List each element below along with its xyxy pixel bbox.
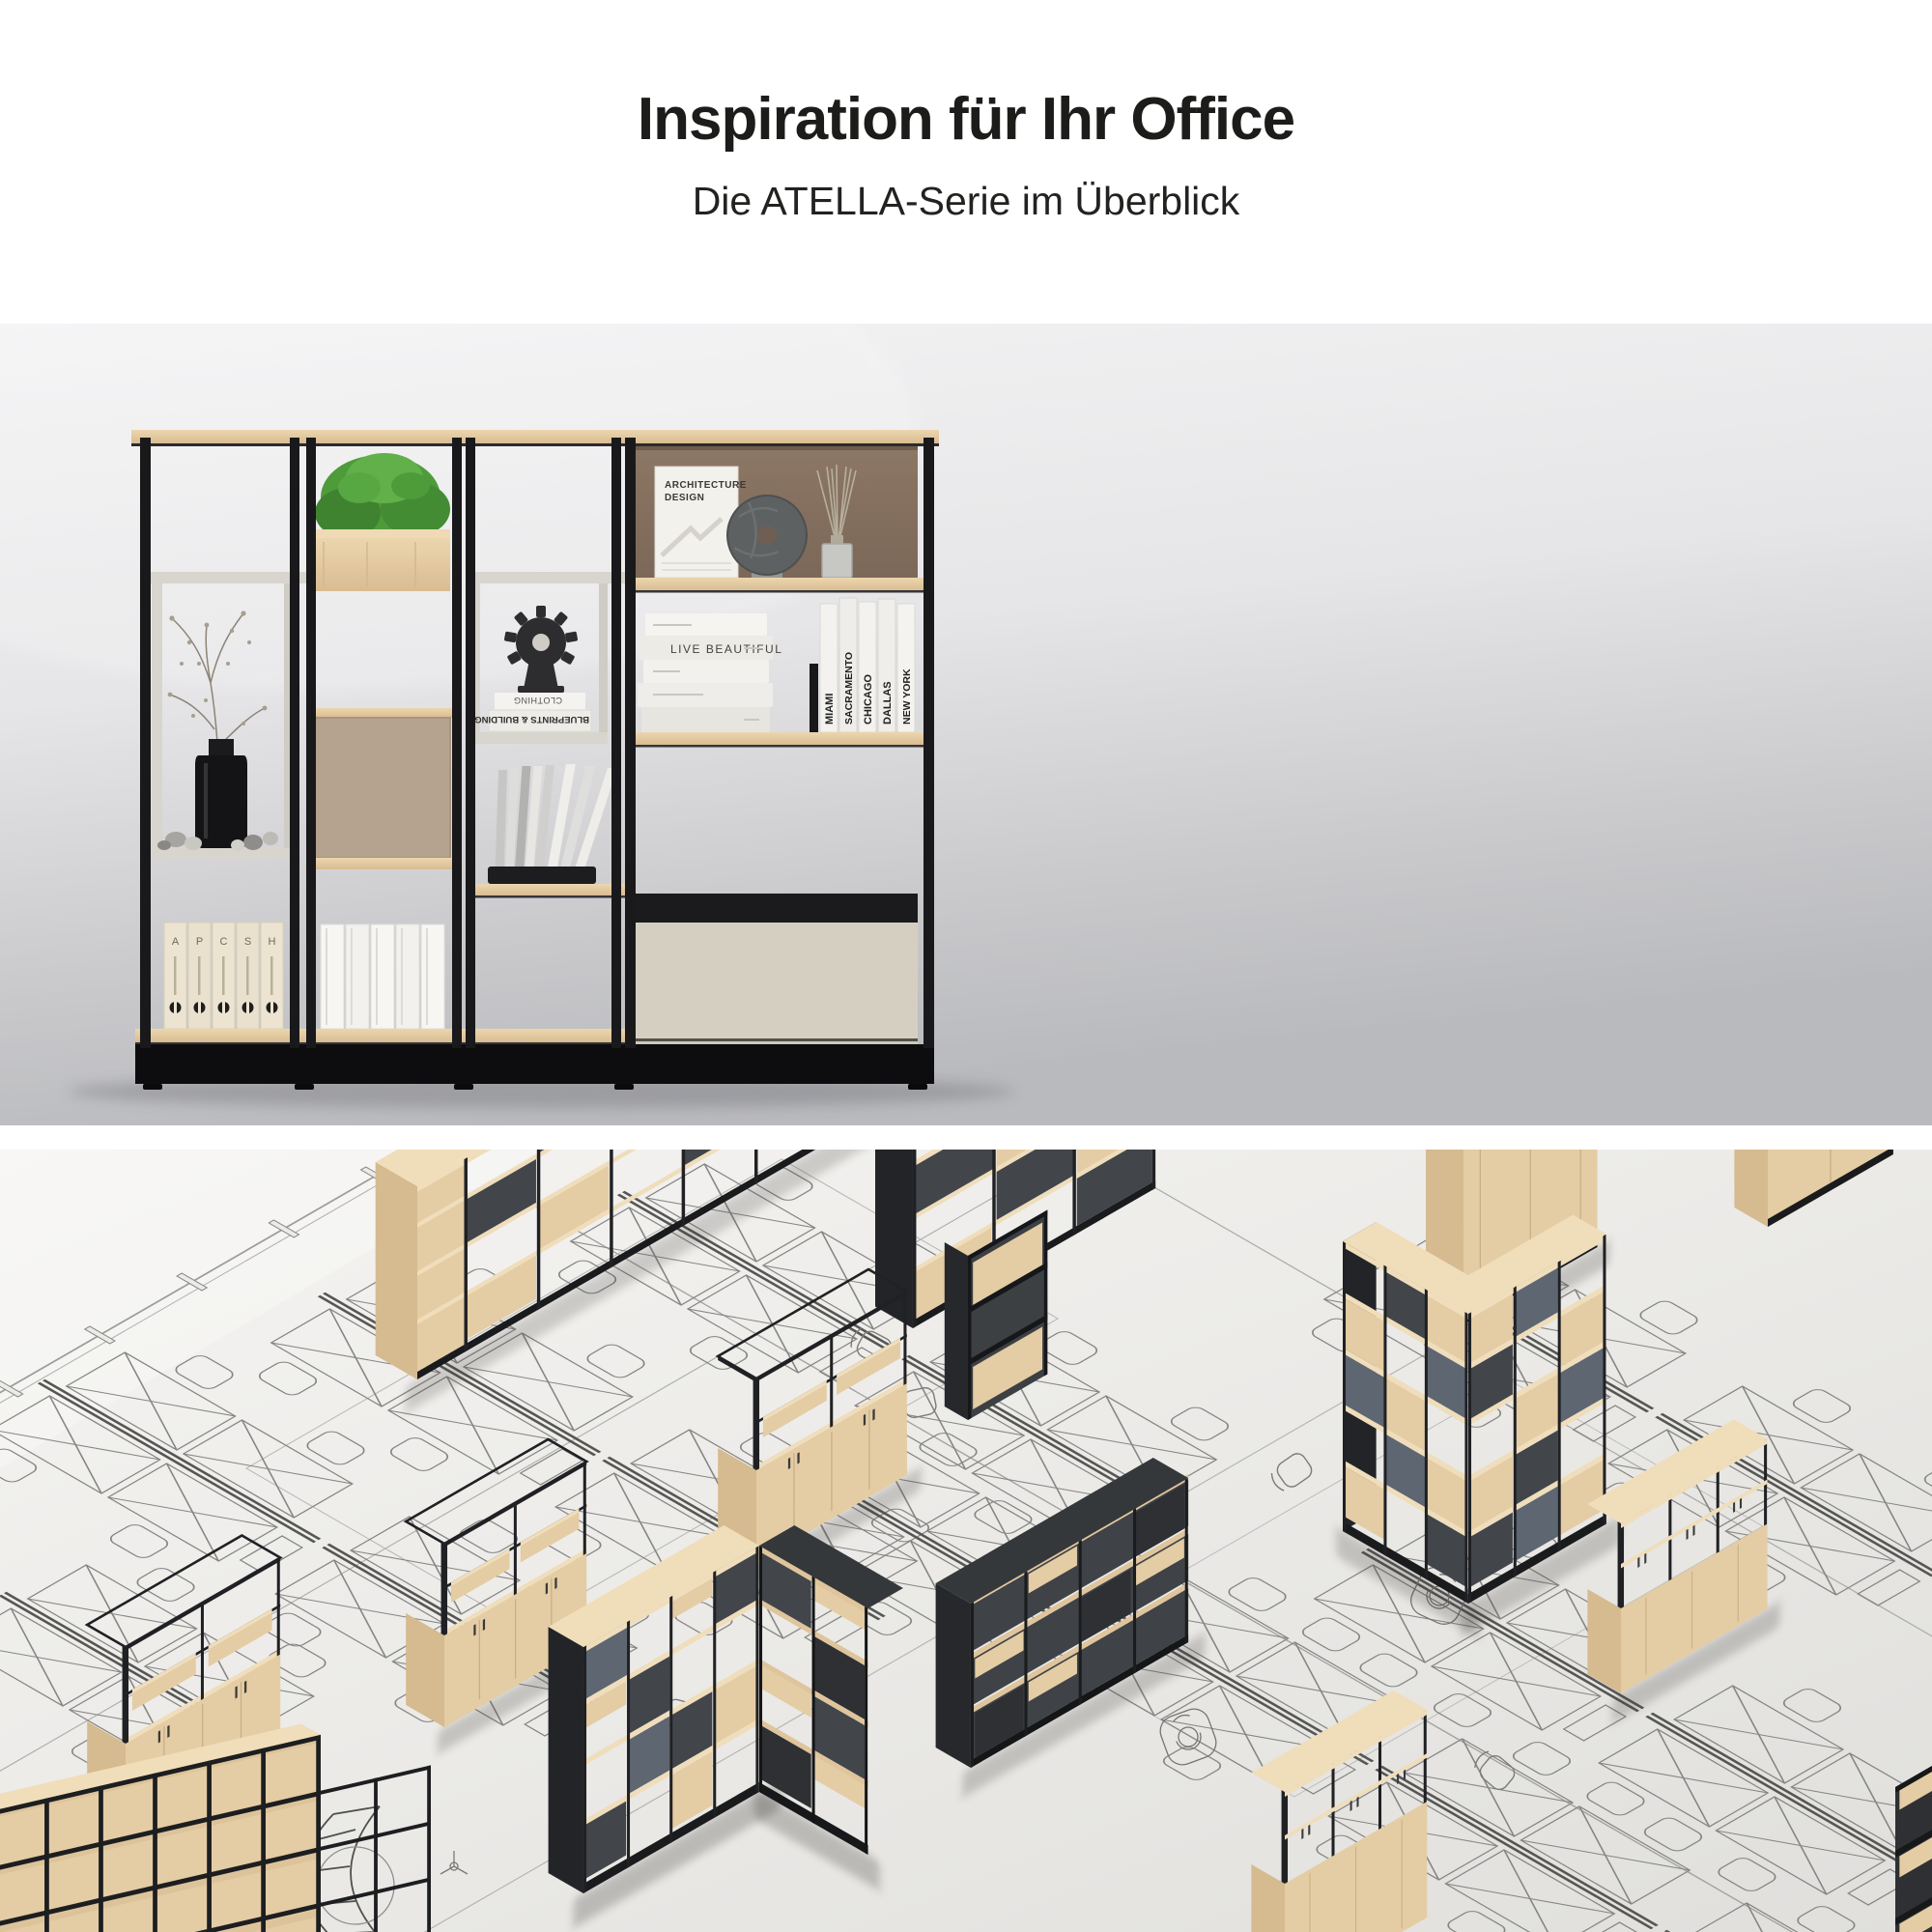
- svg-text:MIAMI: MIAMI: [824, 694, 836, 724]
- page-title: Inspiration für Ihr Office: [0, 85, 1932, 154]
- binders-labeled: A P C S H: [164, 923, 283, 1029]
- felt-panel-tan: [306, 708, 454, 869]
- floorplan-illustration: [0, 1150, 1932, 1932]
- shelf-light-c1: [140, 572, 306, 583]
- svg-text:S: S: [244, 936, 251, 948]
- svg-text:DALLAS: DALLAS: [882, 681, 894, 724]
- section-divider: [0, 1125, 1932, 1150]
- shelf-photo-illustration: ARCHITECTURE DESIGN: [0, 324, 1932, 1125]
- floorplan-render: [0, 1150, 1932, 1932]
- page-subtitle: Die ATELLA-Serie im Überblick: [0, 179, 1932, 224]
- bottom-shelf: [135, 1029, 628, 1042]
- planter-plant: [311, 453, 450, 591]
- svg-text:CLOTHING: CLOTHING: [513, 696, 562, 705]
- plinth: [135, 1044, 934, 1084]
- svg-text:A: A: [172, 936, 180, 948]
- svg-text:C: C: [220, 936, 228, 948]
- header: Inspiration für Ihr Office Die ATELLA-Se…: [0, 0, 1932, 324]
- svg-text:BLUEPRINTS & BUILDINGS: BLUEPRINTS & BUILDINGS: [469, 714, 589, 724]
- svg-text:H: H: [269, 936, 276, 948]
- binders-white: [321, 924, 444, 1029]
- svg-text:NEW YORK: NEW YORK: [901, 668, 913, 724]
- svg-text:CHICAGO: CHICAGO: [863, 674, 874, 724]
- top-shelf: [131, 430, 939, 443]
- svg-text:LIVE BEAUTIFUL: LIVE BEAUTIFUL: [670, 642, 782, 656]
- hero-product-photo: ARCHITECTURE DESIGN: [0, 324, 1932, 1125]
- shelf-wood-c4-mid: [625, 732, 934, 745]
- svg-text:DESIGN: DESIGN: [665, 493, 704, 503]
- sideboard-front: [630, 894, 918, 1053]
- book-stack: LIVE BEAUTIFUL: [638, 613, 782, 732]
- page: Inspiration für Ihr Office Die ATELLA-Se…: [0, 0, 1932, 1932]
- shelf-wood-c3: [466, 884, 625, 895]
- shelf-wood-c4: [625, 578, 934, 590]
- svg-text:P: P: [196, 936, 203, 948]
- svg-text:ARCHITECTURE: ARCHITECTURE: [665, 480, 747, 491]
- svg-text:SACRAMENTO: SACRAMENTO: [843, 652, 855, 724]
- city-books: MIAMI SACRAMENTO CHICAGO DALLAS NEW YORK: [810, 598, 915, 732]
- shelf-light-c3: [466, 572, 625, 583]
